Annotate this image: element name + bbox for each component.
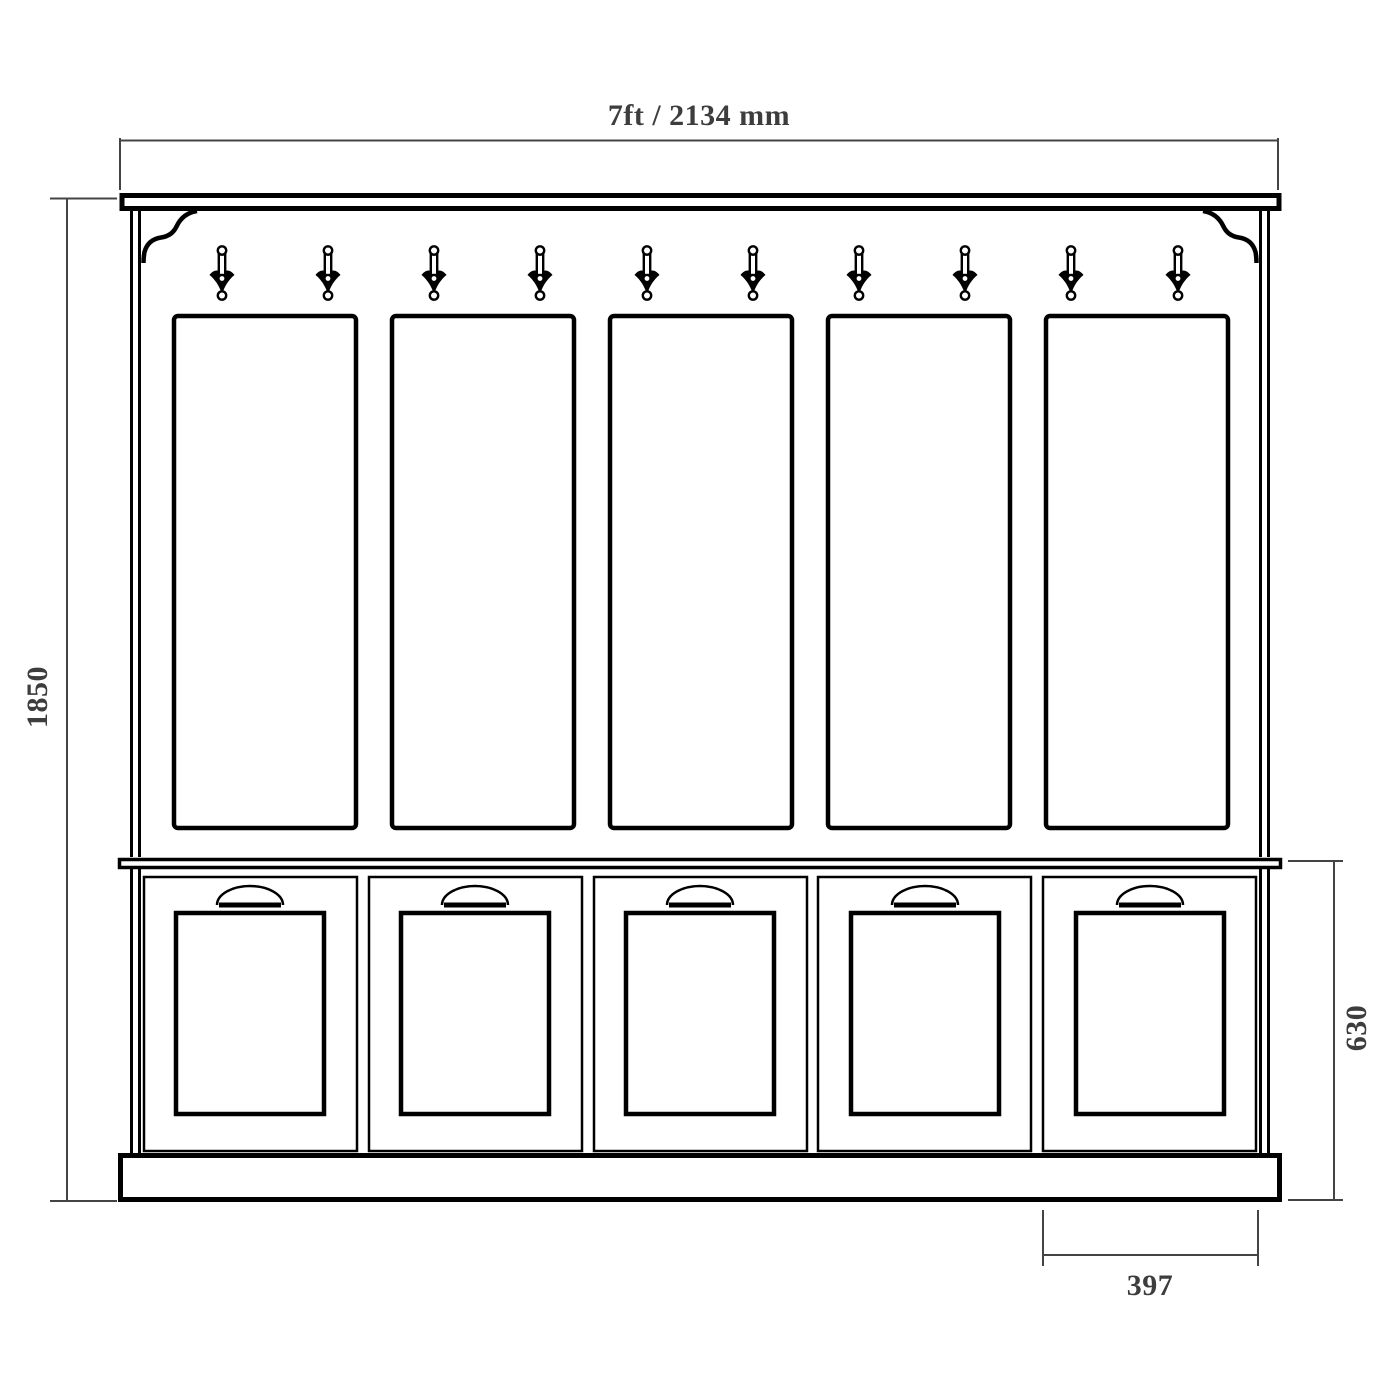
corner-bracket-left [144,211,198,263]
locker-width-label: 397 [1127,1269,1174,1303]
left-lower-side-rail [132,869,140,1154]
right-lower-side-rail [1261,869,1269,1154]
cornice-top-board [122,196,1279,209]
door-handle-icon [667,886,733,905]
door-handle-icon [892,886,958,905]
door-panel-5 [1076,913,1224,1114]
back-panel-4 [828,316,1010,828]
plinth-base [121,1156,1280,1200]
door-panel-3 [626,913,774,1114]
door-panel-2 [401,913,549,1114]
coat-hook-icon [528,246,553,299]
dimension-locker-width [1043,1210,1258,1266]
back-panel-2 [392,316,574,828]
corner-bracket-right [1203,211,1257,263]
coat-hook-icon [1059,246,1084,299]
door-panel-row [176,913,1224,1114]
back-panel-1 [174,316,356,828]
overall-width-label: 7ft / 2134 mm [608,99,790,133]
door-handle-icon [442,886,508,905]
coat-hook-icon [953,246,978,299]
dimension-overall-width [120,138,1278,190]
furniture-elevation-drawing [0,0,1400,1400]
coat-hook-icon [1166,246,1191,299]
lower-section-height-label: 630 [1340,1005,1374,1052]
door-panel-1 [176,913,324,1114]
dimension-overall-height [50,198,117,1201]
left-side-rail [132,210,140,857]
locker-door-row [144,877,1256,1151]
coat-hook-row [210,246,1191,299]
coat-hook-icon [422,246,447,299]
back-panel-5 [1046,316,1228,828]
technical-drawing-canvas: 7ft / 2134 mm 1850 630 397 [0,0,1400,1400]
seat-rail [120,860,1281,868]
door-handle-row [217,886,1183,905]
coat-hook-icon [635,246,660,299]
door-handle-icon [217,886,283,905]
dimension-lower-section-height [1288,861,1343,1200]
door-panel-4 [851,913,999,1114]
overall-height-label: 1850 [21,666,55,728]
back-panel-row [174,316,1228,828]
door-handle-icon [1117,886,1183,905]
coat-hook-icon [316,246,341,299]
right-side-rail [1261,210,1269,857]
coat-hook-icon [847,246,872,299]
back-panel-3 [610,316,792,828]
coat-hook-icon [210,246,235,299]
coat-hook-icon [741,246,766,299]
